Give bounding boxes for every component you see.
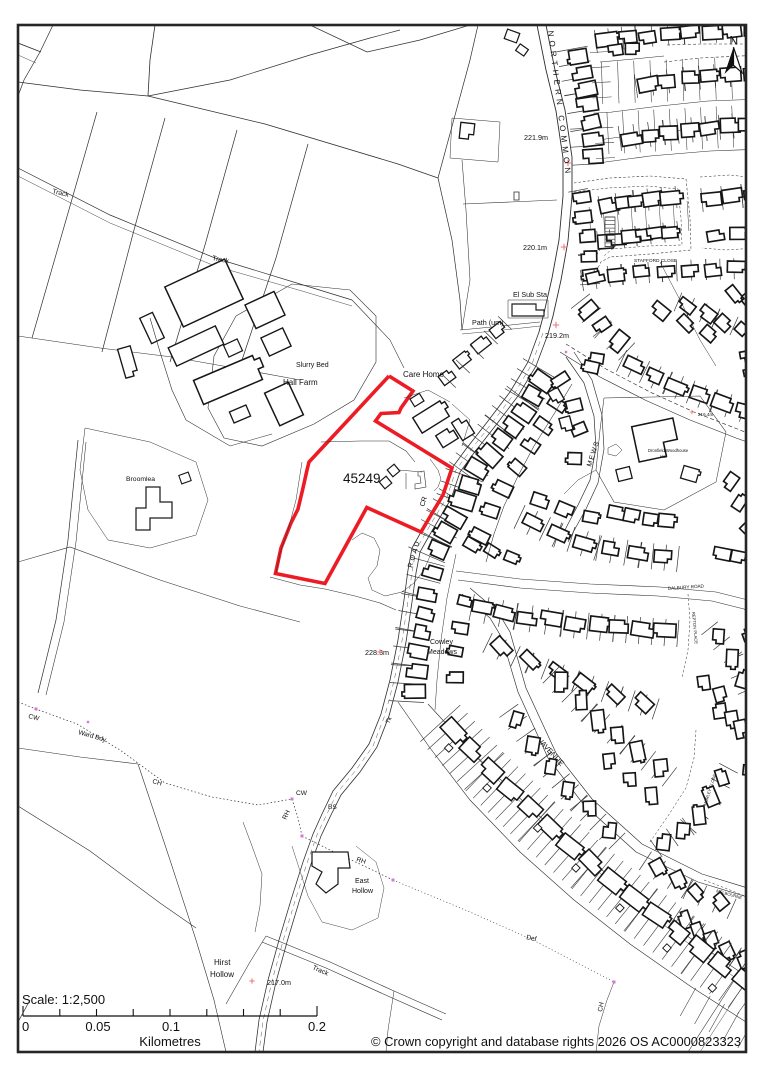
svg-text:El Sub Sta: El Sub Sta (513, 290, 547, 299)
svg-text:220.1m: 220.1m (523, 243, 547, 252)
svg-text:Cowley: Cowley (430, 639, 453, 646)
svg-text:Care Home: Care Home (403, 370, 444, 379)
svg-text:Scale: 1:2,500: Scale: 1:2,500 (22, 992, 105, 1007)
svg-text:East: East (355, 878, 369, 885)
svg-text:Hollow: Hollow (210, 970, 234, 979)
svg-text:Meadows: Meadows (427, 649, 457, 656)
svg-text:216.4m: 216.4m (698, 412, 713, 417)
svg-text:N: N (730, 33, 739, 47)
svg-text:Hirst: Hirst (214, 958, 231, 967)
svg-text:Path (um): Path (um) (472, 318, 504, 327)
svg-text:Hall Farm: Hall Farm (283, 378, 318, 387)
svg-text:Slurry Bed: Slurry Bed (296, 362, 329, 369)
svg-text:Hollow: Hollow (352, 888, 374, 895)
svg-text:Hall: Hall (660, 454, 667, 459)
svg-text:Broomlea: Broomlea (126, 476, 155, 483)
svg-text:Dronfield Woodhouse: Dronfield Woodhouse (648, 448, 689, 453)
svg-text:219.2m: 219.2m (545, 331, 569, 340)
svg-text:0.2: 0.2 (308, 1019, 326, 1034)
svg-text:CW: CW (296, 790, 308, 797)
svg-text:STAFFORD CLOSE: STAFFORD CLOSE (634, 258, 677, 264)
svg-text:217.0m: 217.0m (267, 978, 291, 987)
svg-text:0: 0 (22, 1019, 29, 1034)
svg-text:221.9m: 221.9m (524, 133, 548, 142)
svg-text:BS: BS (328, 804, 337, 811)
svg-text:45249: 45249 (343, 471, 381, 486)
svg-text:© Crown copyright and database: © Crown copyright and database rights 20… (371, 1034, 741, 1049)
svg-text:0.1: 0.1 (162, 1019, 180, 1034)
svg-text:Kilometres: Kilometres (139, 1034, 201, 1049)
svg-text:0.05: 0.05 (85, 1019, 110, 1034)
svg-text:228.3m: 228.3m (365, 648, 389, 657)
